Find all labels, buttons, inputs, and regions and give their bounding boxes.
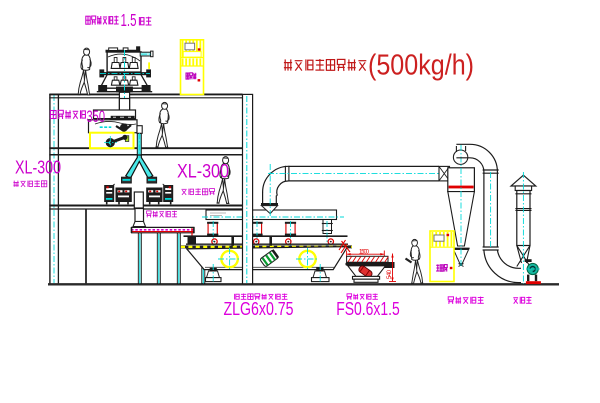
svg-text:1500: 1500: [359, 249, 370, 255]
svg-text:ZLG6x0.75: ZLG6x0.75: [224, 299, 294, 319]
svg-text:XL-300: XL-300: [177, 162, 229, 183]
svg-text:XL-300: XL-300: [15, 158, 61, 178]
svg-text:540: 540: [387, 269, 393, 279]
svg-text:(500kg/h): (500kg/h): [368, 50, 474, 82]
svg-text:350: 350: [87, 107, 106, 126]
svg-text:1.5: 1.5: [121, 10, 137, 30]
svg-text:FS0.6x1.5: FS0.6x1.5: [336, 299, 400, 319]
